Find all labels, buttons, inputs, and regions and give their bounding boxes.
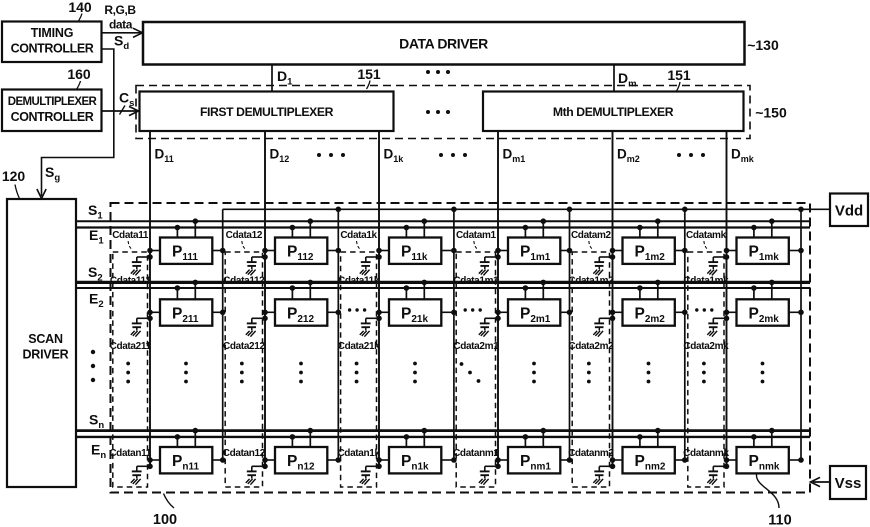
svg-text:Cdata1m2: Cdata1m2 bbox=[568, 276, 614, 287]
svg-text:Cdatamk: Cdatamk bbox=[686, 230, 727, 241]
svg-text:110: 110 bbox=[768, 513, 791, 527]
svg-text:140: 140 bbox=[68, 0, 92, 15]
svg-text:Cdata11: Cdata11 bbox=[112, 230, 149, 241]
svg-text:TIMING: TIMING bbox=[31, 26, 74, 40]
svg-text:Cdata2m1: Cdata2m1 bbox=[453, 341, 499, 352]
svg-text:Cdatanmk: Cdatanmk bbox=[683, 448, 729, 459]
svg-text:Cdata2mk: Cdata2mk bbox=[683, 341, 729, 352]
svg-text:Cdata21k: Cdata21k bbox=[338, 341, 380, 352]
svg-text:CONTROLLER: CONTROLLER bbox=[11, 42, 94, 56]
svg-text:Cdata212: Cdata212 bbox=[223, 341, 265, 352]
svg-text:FIRST DEMULTIPLEXER: FIRST DEMULTIPLEXER bbox=[200, 105, 334, 119]
svg-text:Cdatam1: Cdatam1 bbox=[456, 230, 497, 241]
svg-text:120: 120 bbox=[2, 168, 26, 184]
svg-text:Cdata1mk: Cdata1mk bbox=[683, 276, 729, 287]
svg-text:R,G,B: R,G,B bbox=[104, 3, 136, 17]
svg-text:Cdata1m1: Cdata1m1 bbox=[453, 276, 499, 287]
svg-text:Cdatanm1: Cdatanm1 bbox=[453, 448, 499, 459]
svg-text:Cdatam2: Cdatam2 bbox=[571, 230, 612, 241]
svg-text:Cdata211: Cdata211 bbox=[110, 341, 152, 352]
svg-text:DEMULTIPLEXER: DEMULTIPLEXER bbox=[8, 96, 98, 108]
svg-text:SCAN: SCAN bbox=[28, 332, 63, 346]
svg-text:~150: ~150 bbox=[755, 105, 787, 121]
svg-text:Cdatan12: Cdatan12 bbox=[223, 448, 266, 459]
svg-text:Cdata112: Cdata112 bbox=[223, 276, 265, 287]
svg-text:Cdata2m2: Cdata2m2 bbox=[568, 341, 614, 352]
svg-text:151: 151 bbox=[357, 66, 381, 82]
svg-text:DATA DRIVER: DATA DRIVER bbox=[399, 36, 488, 52]
svg-text:Cdata11k: Cdata11k bbox=[338, 276, 380, 287]
svg-text:~130: ~130 bbox=[747, 37, 779, 53]
svg-text:Cdatan1k: Cdatan1k bbox=[337, 448, 380, 459]
svg-text:Cdata12: Cdata12 bbox=[226, 230, 263, 241]
svg-text:Vss: Vss bbox=[835, 475, 862, 492]
svg-text:DRIVER: DRIVER bbox=[22, 348, 68, 362]
svg-text:Mth DEMULTIPLEXER: Mth DEMULTIPLEXER bbox=[553, 105, 674, 119]
svg-text:Vdd: Vdd bbox=[835, 203, 863, 220]
svg-text:data: data bbox=[109, 18, 133, 32]
svg-text:Cdata1k: Cdata1k bbox=[340, 230, 377, 241]
svg-text:151: 151 bbox=[667, 67, 691, 83]
svg-text:CONTROLLER: CONTROLLER bbox=[11, 110, 94, 124]
svg-text:Cdatan11: Cdatan11 bbox=[109, 448, 151, 459]
svg-text:Cdata111: Cdata111 bbox=[110, 276, 151, 287]
svg-text:160: 160 bbox=[67, 66, 91, 82]
svg-text:Cdatanm2: Cdatanm2 bbox=[568, 448, 614, 459]
svg-text:100: 100 bbox=[153, 512, 177, 527]
